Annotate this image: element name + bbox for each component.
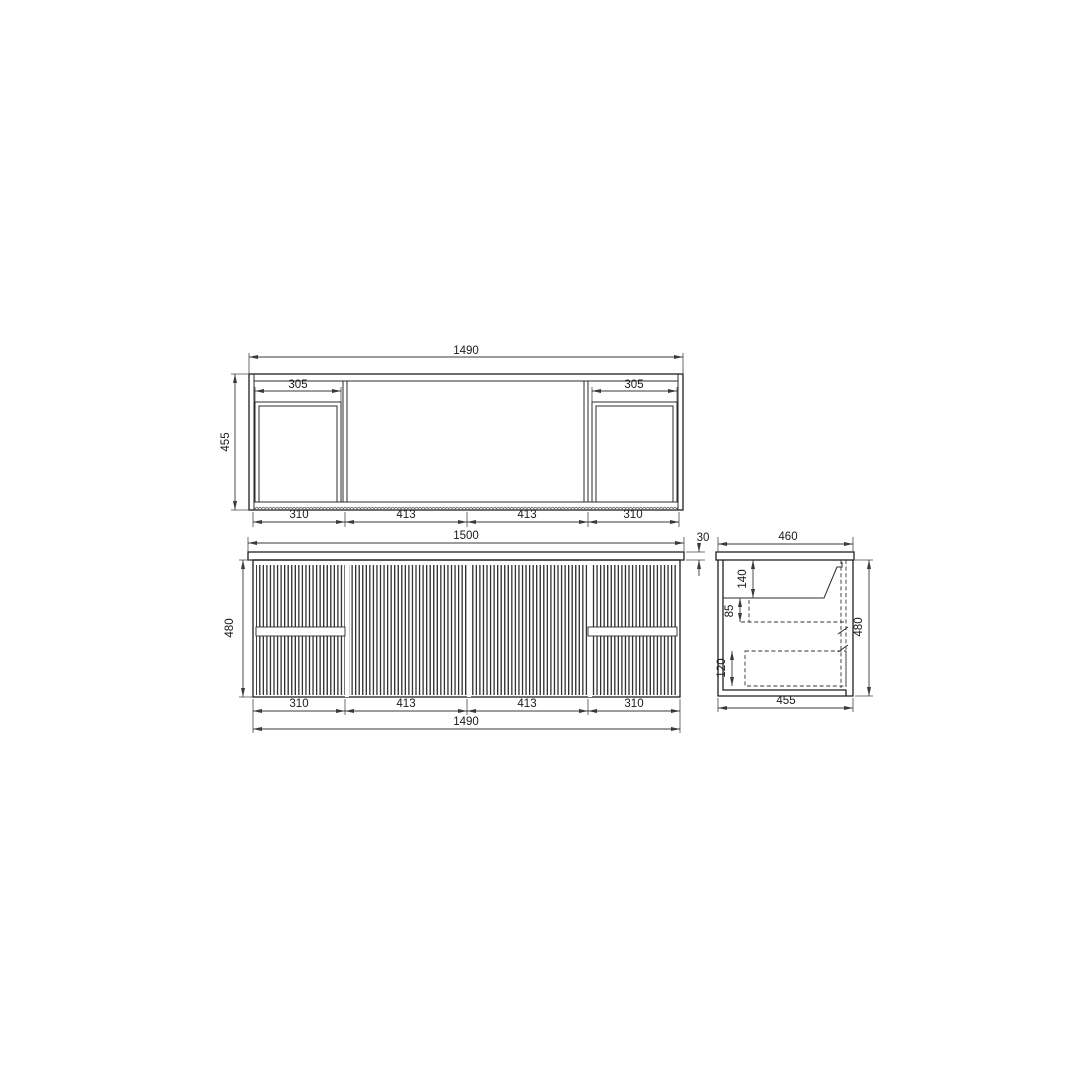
plan-left-opening-label: 305 bbox=[288, 379, 307, 391]
side-dim-height: 480 bbox=[853, 560, 873, 696]
side-cabinet-depth-label: 455 bbox=[776, 695, 795, 707]
plan-dim-left-opening: 305 bbox=[255, 379, 341, 402]
front-height-label: 480 bbox=[224, 618, 236, 637]
front-left-handle-recess bbox=[256, 627, 345, 636]
front-dim-countertop-width: 1500 bbox=[248, 530, 684, 552]
side-hidden-back-lines bbox=[841, 560, 846, 688]
side-dim-basin-depth: 140 bbox=[737, 560, 753, 598]
plan-inner-walls bbox=[254, 374, 678, 510]
plan-view: 1490 455 305 305 310 413 413 310 bbox=[220, 345, 683, 527]
plan-right-opening-label: 305 bbox=[624, 379, 643, 391]
front-cabinet-width-label: 1490 bbox=[453, 716, 479, 728]
plan-seg4-label: 310 bbox=[623, 509, 642, 521]
plan-fluted-front-edge bbox=[254, 503, 678, 509]
plan-dim-right-opening: 305 bbox=[592, 379, 677, 402]
plan-dim-bottom-segments: 310 413 413 310 bbox=[253, 509, 679, 527]
plan-seg3-label: 413 bbox=[517, 509, 536, 521]
front-countertop bbox=[248, 552, 684, 560]
front-seg2-label: 413 bbox=[396, 698, 415, 710]
front-seg3-label: 413 bbox=[517, 698, 536, 710]
plan-dim-depth: 455 bbox=[220, 374, 249, 510]
plan-seg1-label: 310 bbox=[289, 509, 308, 521]
front-dim-cabinet-width: 1490 bbox=[253, 716, 680, 729]
side-view: 460 140 85 120 480 455 bbox=[716, 531, 873, 712]
plan-dividers bbox=[343, 381, 588, 502]
side-countertop bbox=[716, 552, 854, 560]
side-height-label: 480 bbox=[853, 617, 865, 636]
plan-right-drawer-box bbox=[592, 402, 677, 502]
front-countertop-width-label: 1500 bbox=[453, 530, 479, 542]
side-drawer-height-label: 120 bbox=[716, 658, 728, 677]
front-seg1-label: 310 bbox=[289, 698, 308, 710]
side-countertop-depth-label: 460 bbox=[778, 531, 797, 543]
side-under-basin-label: 85 bbox=[724, 605, 736, 618]
side-hidden-bottom-drawer bbox=[745, 651, 846, 686]
side-dim-cabinet-depth: 455 bbox=[718, 695, 853, 712]
plan-carcass-outline bbox=[249, 374, 683, 510]
side-hidden-top-drawer bbox=[741, 600, 846, 622]
plan-overall-width-label: 1490 bbox=[453, 345, 479, 357]
side-dim-under-basin: 85 bbox=[724, 598, 740, 622]
side-dim-countertop-depth: 460 bbox=[718, 531, 853, 552]
plan-seg2-label: 413 bbox=[396, 509, 415, 521]
front-seg4-label: 310 bbox=[624, 698, 643, 710]
front-right-handle-recess bbox=[588, 627, 677, 636]
vanity-drawing-svg: 1490 455 305 305 310 413 413 310 bbox=[0, 0, 1080, 1080]
technical-drawing-page: 1490 455 305 305 310 413 413 310 bbox=[0, 0, 1080, 1080]
front-dim-height: 480 bbox=[224, 560, 253, 697]
front-view: 1500 30 480 310 413 413 310 1490 bbox=[224, 530, 709, 733]
side-basin-depth-label: 140 bbox=[737, 569, 749, 588]
front-dim-countertop-thickness: 30 bbox=[686, 532, 709, 576]
plan-depth-label: 455 bbox=[220, 432, 232, 451]
plan-left-drawer-box bbox=[255, 402, 341, 502]
front-countertop-thickness-label: 30 bbox=[697, 532, 710, 544]
plan-dim-overall-width: 1490 bbox=[249, 345, 683, 374]
side-runner-jogs bbox=[838, 627, 848, 652]
